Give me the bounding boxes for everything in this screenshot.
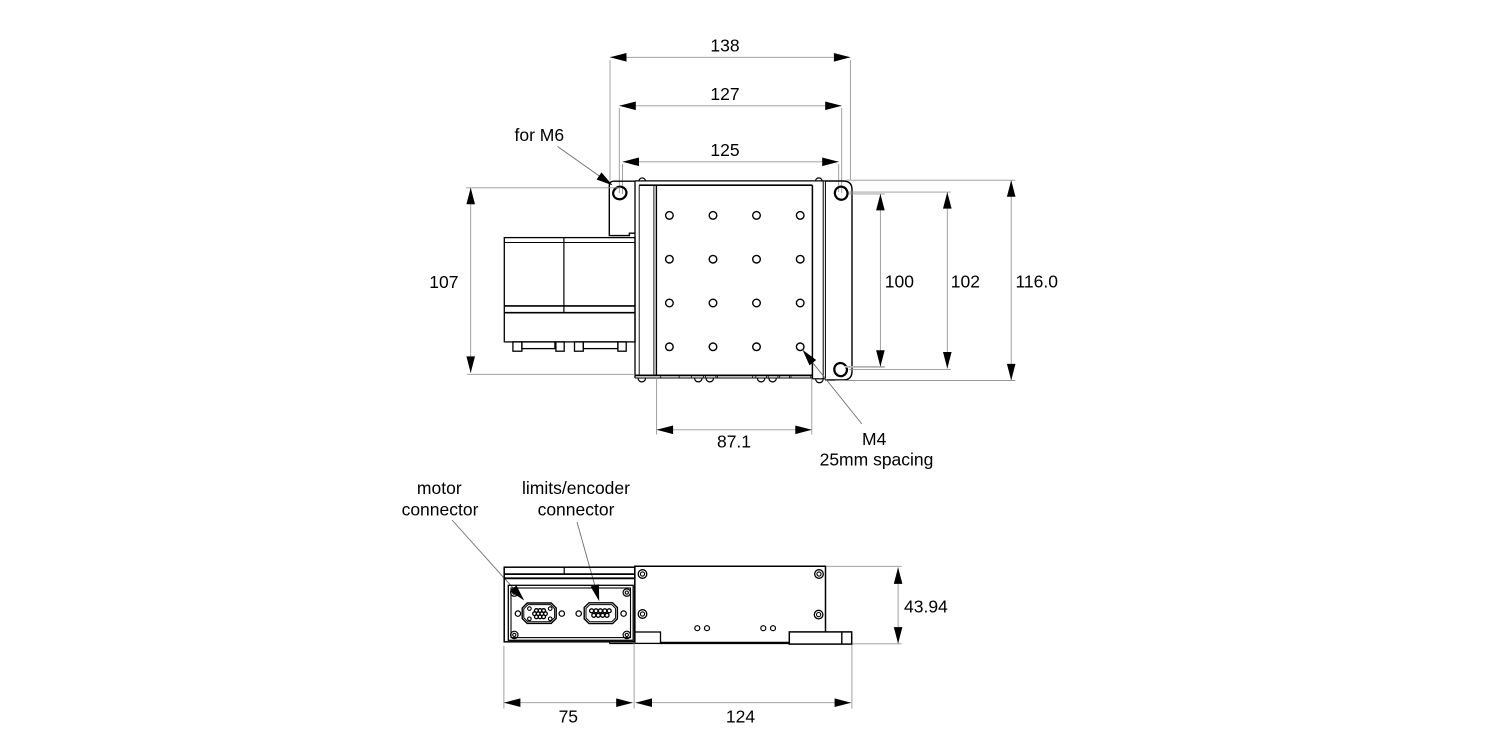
svg-text:connector: connector: [402, 500, 479, 520]
svg-text:25mm spacing: 25mm spacing: [820, 450, 934, 470]
svg-text:138: 138: [710, 36, 739, 56]
svg-text:87.1: 87.1: [717, 432, 751, 452]
svg-text:100: 100: [885, 272, 914, 292]
svg-text:127: 127: [710, 84, 739, 104]
svg-text:motor: motor: [417, 478, 462, 498]
svg-text:102: 102: [951, 272, 980, 292]
svg-text:125: 125: [710, 140, 739, 160]
svg-text:124: 124: [726, 707, 755, 727]
svg-text:43.94: 43.94: [904, 597, 948, 617]
svg-text:75: 75: [559, 707, 578, 727]
svg-text:limits/encoder: limits/encoder: [522, 478, 630, 498]
svg-text:connector: connector: [538, 500, 615, 520]
svg-text:107: 107: [429, 272, 458, 292]
svg-text:for M6: for M6: [515, 125, 565, 145]
svg-text:M4: M4: [862, 429, 887, 449]
svg-text:116.0: 116.0: [1016, 272, 1059, 292]
